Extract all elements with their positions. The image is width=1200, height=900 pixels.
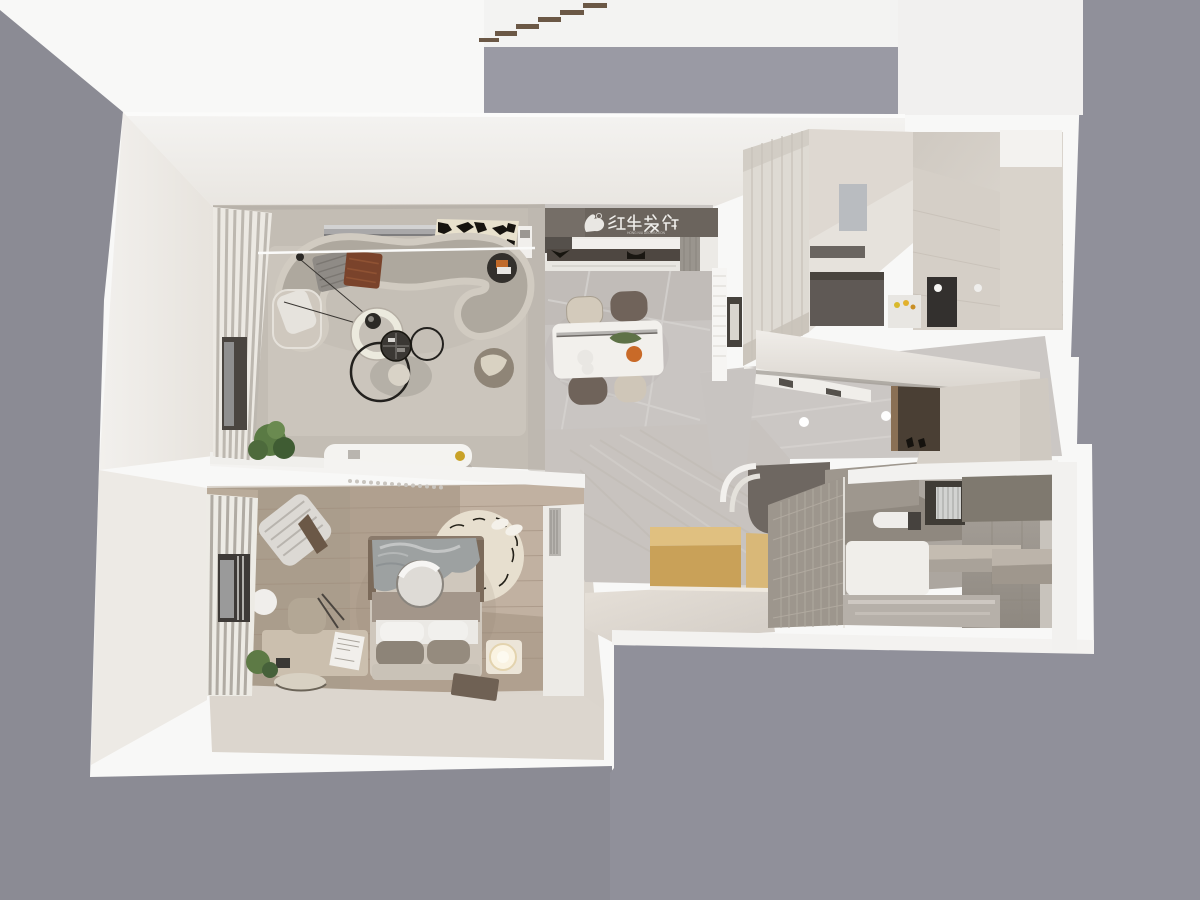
svg-text:HONG NIU DECORATION: HONG NIU DECORATION <box>627 231 666 235</box>
